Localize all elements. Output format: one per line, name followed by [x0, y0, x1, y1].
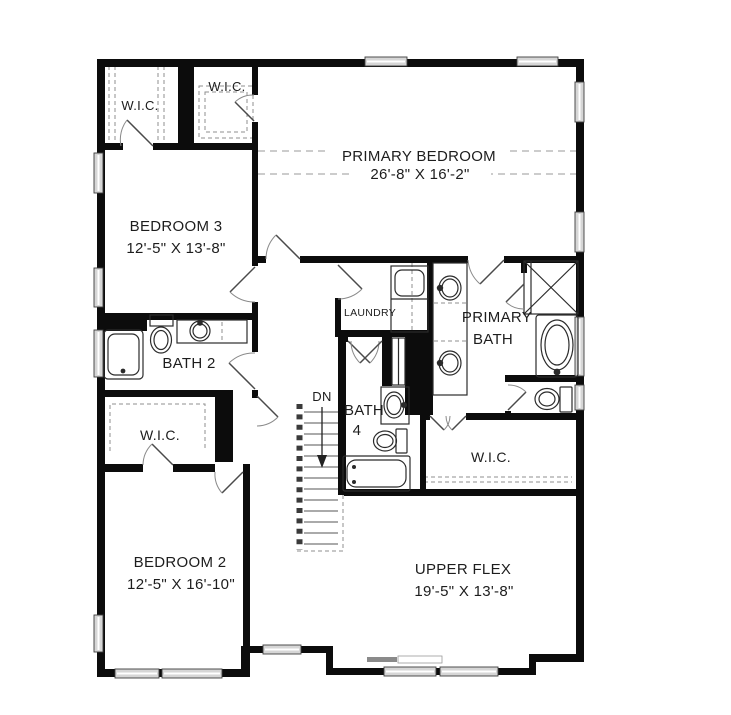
- bath2-tub-fixture: [104, 330, 143, 379]
- door-laundry: [338, 265, 362, 299]
- door-wic-top-left: [120, 120, 153, 146]
- bath4-sink-fixture: [381, 387, 409, 424]
- window-symbol: [365, 57, 407, 66]
- door-primary-bedroom: [266, 235, 300, 259]
- window-symbol: [575, 385, 584, 410]
- window-symbol: [162, 669, 222, 678]
- label-primary-bedroom-dims: 26'-8" X 16'-2": [370, 166, 469, 183]
- window-symbol: [263, 645, 301, 654]
- label-primary-bath-1: PRIMARY: [462, 309, 532, 326]
- chase-landing: [215, 390, 233, 462]
- washer-dryer-fixture: [391, 266, 428, 332]
- label-wic-top-left: W.I.C.: [121, 98, 158, 113]
- window-symbol: [115, 669, 159, 678]
- window-symbol: [575, 212, 584, 252]
- label-bath2: BATH 2: [162, 355, 215, 372]
- floor-plan: W.I.C. W.I.C. PRIMARY BEDROOM 26'-8" X 1…: [0, 0, 731, 715]
- door-bedroom3: [230, 267, 255, 302]
- label-wic-primary: W.I.C.: [471, 449, 511, 465]
- bath2-sink-fixture: [177, 320, 247, 343]
- window-symbol: [517, 57, 558, 66]
- shower-fixture: [524, 261, 578, 314]
- bath4-toilet-fixture: [374, 429, 408, 453]
- label-bedroom2: BEDROOM 2: [134, 554, 227, 571]
- label-wic-top-mid: W.I.C.: [208, 79, 245, 94]
- staircase: [297, 404, 343, 551]
- label-primary-bedroom: PRIMARY BEDROOM: [342, 148, 496, 165]
- label-upper-flex-dims: 19'-5" X 13'-8": [414, 583, 513, 600]
- label-laundry: LAUNDRY: [344, 307, 396, 319]
- label-bedroom3: BEDROOM 3: [130, 218, 223, 235]
- door-bath2: [229, 353, 255, 389]
- primary-tub-fixture: [536, 315, 578, 377]
- stair-down-arrow: [317, 407, 327, 468]
- label-wic-mid-left: W.I.C.: [140, 427, 180, 443]
- roof-line-outline: [398, 656, 442, 663]
- window-symbol: [575, 82, 584, 122]
- chase-bath2: [97, 313, 147, 331]
- bath4-tub-fixture: [343, 456, 410, 491]
- door-landing: [257, 396, 278, 426]
- bath2-toilet-fixture: [150, 315, 173, 353]
- window-symbol: [94, 268, 103, 307]
- chase-top: [178, 59, 194, 149]
- door-bedroom2: [215, 472, 243, 493]
- roof-line: [367, 657, 397, 662]
- stair-treads: [304, 412, 338, 544]
- window-symbol: [575, 317, 584, 376]
- label-bedroom2-dims: 12'-5" X 16'-10": [127, 576, 235, 593]
- label-bath4-1: BATH: [344, 402, 384, 419]
- door-primary-bath: [468, 260, 504, 284]
- window-symbol: [94, 615, 103, 652]
- window-symbol: [384, 667, 436, 676]
- wc-toilet-fixture: [535, 387, 572, 412]
- floor-plan-page: W.I.C. W.I.C. PRIMARY BEDROOM 26'-8" X 1…: [0, 0, 731, 715]
- door-wic-mid: [143, 444, 173, 465]
- label-stairs-dn: DN: [312, 389, 331, 404]
- label-upper-flex: UPPER FLEX: [415, 561, 511, 578]
- window-symbol: [94, 330, 103, 377]
- label-bath4-2: 4: [353, 422, 362, 439]
- label-bedroom3-dims: 12'-5" X 13'-8": [126, 240, 225, 257]
- window-symbol: [94, 153, 103, 193]
- primary-vanity-fixture: [433, 263, 467, 395]
- door-water-closet: [508, 385, 526, 410]
- door-wic-top-mid: [235, 95, 254, 121]
- window-symbol: [440, 667, 498, 676]
- linen-shelf-fixture: [392, 338, 405, 385]
- door-shower: [506, 284, 524, 309]
- label-primary-bath-2: BATH: [473, 331, 513, 348]
